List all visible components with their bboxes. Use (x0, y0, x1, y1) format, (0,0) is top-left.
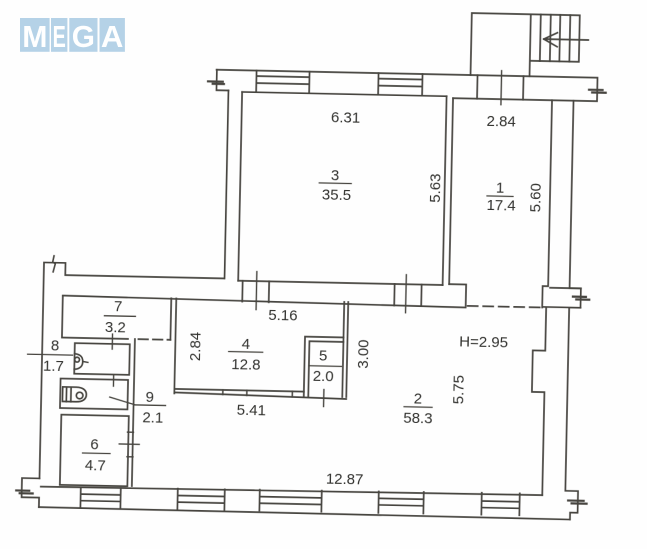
svg-text:A: A (101, 19, 124, 54)
svg-text:E: E (53, 19, 66, 54)
svg-text:2.84: 2.84 (187, 332, 205, 362)
svg-text:6.31: 6.31 (331, 109, 361, 127)
svg-text:H=2.95: H=2.95 (459, 333, 508, 351)
svg-text:7: 7 (114, 298, 123, 315)
svg-text:5.60: 5.60 (527, 183, 545, 213)
svg-text:17.4: 17.4 (486, 197, 516, 215)
svg-text:M: M (22, 19, 47, 54)
svg-text:3: 3 (331, 167, 340, 184)
svg-text:2.1: 2.1 (142, 409, 163, 426)
svg-text:35.5: 35.5 (322, 187, 352, 205)
svg-text:2.0: 2.0 (313, 368, 334, 385)
svg-text:5.16: 5.16 (268, 307, 298, 325)
svg-text:5.75: 5.75 (450, 375, 468, 405)
svg-text:58.3: 58.3 (403, 410, 433, 428)
svg-text:12.87: 12.87 (326, 470, 364, 488)
svg-text:6: 6 (90, 436, 99, 453)
svg-text:1.7: 1.7 (43, 358, 64, 375)
svg-text:4.7: 4.7 (85, 457, 106, 474)
svg-text:8: 8 (51, 338, 60, 355)
svg-text:3.2: 3.2 (105, 319, 126, 336)
svg-text:G: G (72, 19, 95, 54)
svg-text:5.41: 5.41 (237, 402, 267, 420)
svg-text:4: 4 (242, 336, 251, 353)
svg-text:5.63: 5.63 (427, 173, 445, 203)
svg-text:3.00: 3.00 (355, 339, 373, 369)
svg-text:2.84: 2.84 (486, 113, 516, 131)
svg-text:9: 9 (145, 389, 154, 406)
svg-text:2: 2 (414, 390, 423, 407)
svg-text:1: 1 (496, 179, 505, 196)
svg-text:5: 5 (319, 348, 328, 365)
svg-text:12.8: 12.8 (231, 356, 261, 374)
